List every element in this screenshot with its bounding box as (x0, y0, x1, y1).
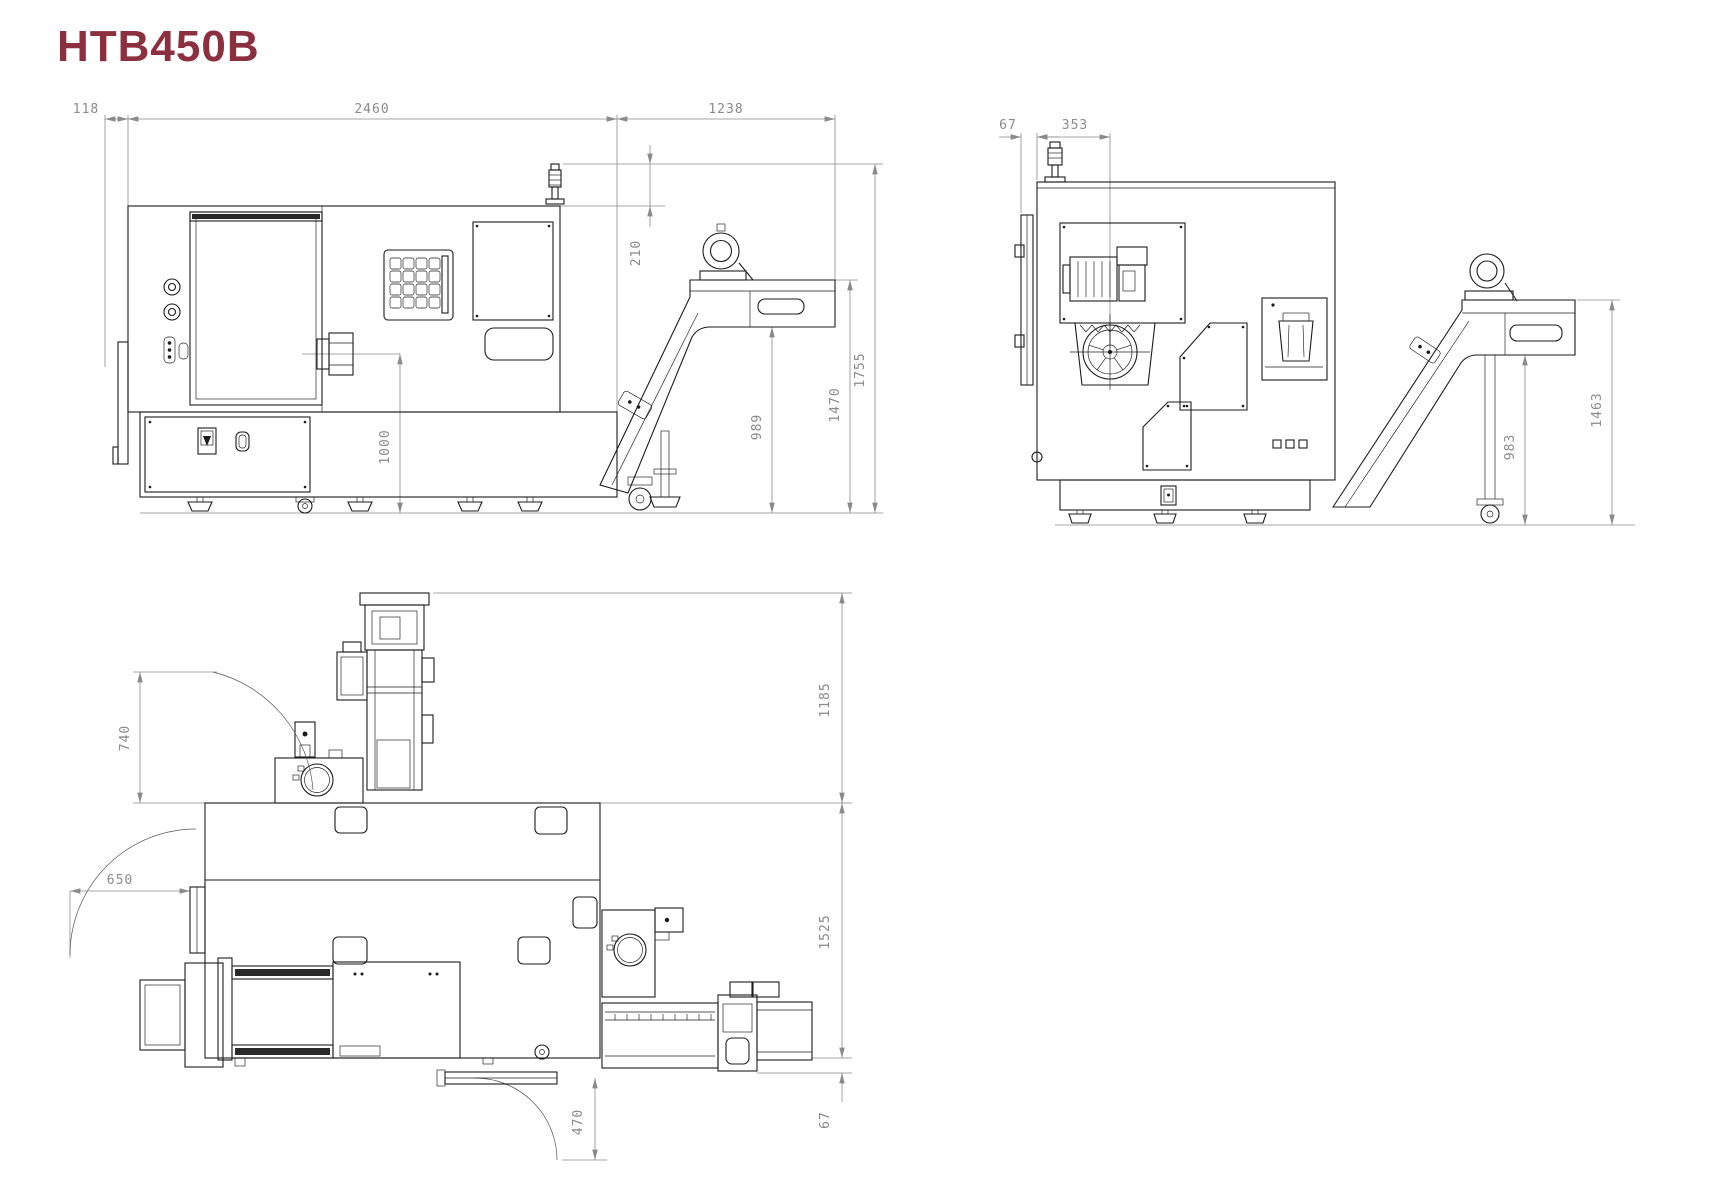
dim-989-label: 989 (750, 414, 765, 440)
top-conveyor-column (337, 593, 434, 790)
side-chip-conveyor (1333, 254, 1575, 523)
dim-1185-label: 1185 (818, 682, 833, 717)
top-left-door (140, 887, 223, 1067)
top-view-drawing: 740 650 1185 1525 67 470 (65, 540, 875, 1190)
front-feet-casters (188, 497, 542, 513)
dim-67-label: 67 (999, 118, 1017, 133)
front-operator-buttons (164, 279, 188, 363)
front-right-window (473, 222, 553, 360)
dim-353-label: 353 (1062, 118, 1088, 133)
front-view-drawing: 118 2460 1238 210 1000 989 1470 1755 (50, 75, 890, 535)
dim-2460-label: 2460 (354, 102, 389, 117)
dim-1525-label: 1525 (818, 914, 833, 949)
side-motor-window (1060, 223, 1185, 323)
side-coolant-door (1262, 298, 1327, 448)
front-sliding-door (190, 212, 322, 405)
dim-1000-label: 1000 (378, 429, 393, 464)
side-signal-lamp (1045, 142, 1065, 182)
dim-740-label: 740 (118, 725, 133, 751)
top-slide-rails (218, 958, 549, 1060)
front-dimensions: 118 2460 1238 210 1000 989 1470 1755 (73, 102, 883, 513)
dim-210-label: 210 (629, 240, 644, 266)
top-dimensions: 740 650 1185 1525 67 470 (70, 593, 852, 1160)
side-bed-panels (1143, 323, 1247, 470)
top-right-headstock (602, 908, 683, 997)
model-title: HTB450B (57, 22, 260, 72)
side-dimensions: 67 353 983 1463 (999, 118, 1635, 525)
top-horizontal-conveyor (602, 982, 812, 1071)
side-base (1032, 452, 1310, 523)
top-door-swing-arcs (70, 672, 557, 1160)
dim-1238-label: 1238 (708, 102, 743, 117)
front-machine-cabinet (113, 206, 560, 464)
signal-lamp (546, 164, 564, 204)
dim-1470-label: 1470 (828, 387, 843, 422)
dim-118-label: 118 (73, 102, 99, 117)
dim-470-label: 470 (571, 1109, 586, 1135)
top-front-door (437, 1070, 557, 1086)
dim-983-label: 983 (1503, 434, 1518, 460)
dim-650-label: 650 (107, 873, 133, 888)
dim-67-label: 67 (818, 1111, 833, 1129)
top-spindle-head (275, 722, 363, 803)
dim-1463-label: 1463 (1590, 392, 1605, 427)
side-view-drawing: 67 353 983 1463 (865, 95, 1665, 535)
front-control-keypad (384, 250, 453, 320)
side-headstock-chuck (1070, 314, 1155, 390)
top-machine-body (205, 803, 600, 1066)
